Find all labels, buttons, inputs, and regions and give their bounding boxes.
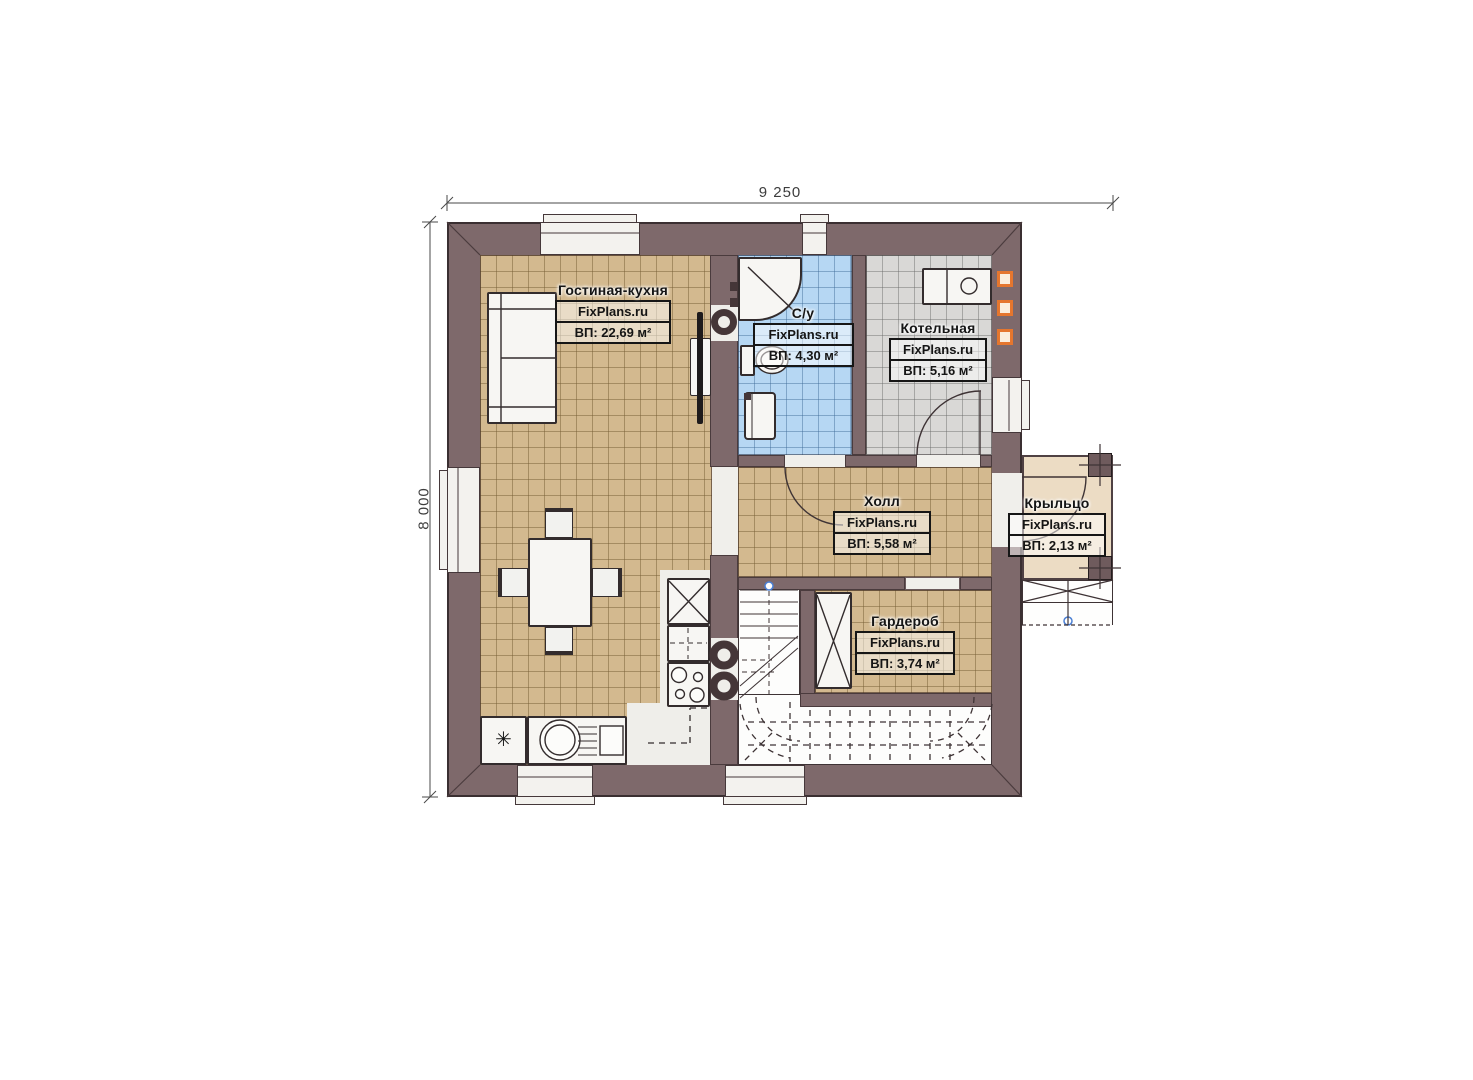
watermark: FixPlans.ru [835, 513, 929, 534]
fridge: ✳ [480, 716, 527, 765]
room-label-hall: Холл FixPlans.ru ВП: 5,58 м² [832, 494, 932, 555]
dining-table [528, 538, 592, 627]
window-top-living [540, 222, 640, 255]
dimension-width: 9 250 [740, 184, 820, 201]
vent-grille-3 [997, 329, 1013, 345]
wall-wardrobe-bottom [800, 693, 992, 707]
room-name-hall: Холл [832, 494, 932, 509]
room-name-living: Гостиная-кухня [545, 283, 681, 298]
shower-handle-2 [730, 298, 738, 307]
wall-boiler-hall-stub [980, 455, 992, 467]
watermark: FixPlans.ru [857, 633, 953, 654]
vent-grille-2 [997, 300, 1013, 316]
stove [667, 662, 710, 707]
watermark: FixPlans.ru [755, 325, 852, 346]
wall-stair-wardrobe [800, 590, 815, 695]
porch-post-bottom [1088, 556, 1112, 580]
room-area-wardrobe: ВП: 3,74 м² [857, 654, 953, 673]
wall-hall-wardrobe-stub [960, 577, 992, 590]
wall-bath-hall-2 [845, 455, 917, 467]
room-info-wardrobe: FixPlans.ru ВП: 3,74 м² [855, 631, 955, 675]
fridge-icon: ✳ [495, 729, 512, 751]
window-top-living-sill [543, 214, 637, 223]
chair-right [592, 568, 622, 597]
watermark: FixPlans.ru [1010, 515, 1104, 536]
room-info-boiler: FixPlans.ru ВП: 5,16 м² [889, 338, 987, 382]
window-left-sill [439, 470, 448, 570]
wall-hall-stair [738, 577, 905, 590]
room-label-wardrobe: Гардероб FixPlans.ru ВП: 3,74 м² [855, 614, 955, 675]
kitchen-floor-corner [627, 703, 660, 765]
vent-panel-top [711, 305, 738, 341]
vent-grille-1 [997, 271, 1013, 287]
porch-step-2 [1022, 602, 1113, 625]
shower-handle-1 [730, 282, 738, 291]
window-left-living [447, 467, 480, 573]
dimension-height: 8 000 [416, 469, 433, 549]
window-top-bath-sill [800, 214, 829, 223]
opening-bathroom-door [785, 455, 845, 467]
kitchen-sink-unit [527, 716, 627, 765]
window-bottom-stairs [725, 765, 805, 797]
kitchen-cabinet-base [667, 625, 710, 662]
opening-boiler-door [917, 455, 980, 467]
room-label-living: Гостиная-кухня FixPlans.ru ВП: 22,69 м² [545, 283, 681, 344]
room-info-living: FixPlans.ru ВП: 22,69 м² [555, 300, 671, 344]
watermark: FixPlans.ru [891, 340, 985, 361]
opening-wardrobe [905, 577, 960, 590]
watermark: FixPlans.ru [557, 302, 669, 323]
room-label-porch: Крыльцо FixPlans.ru ВП: 2,13 м² [1007, 496, 1107, 557]
chair-top [545, 508, 573, 538]
room-info-hall: FixPlans.ru ВП: 5,58 м² [833, 511, 931, 555]
window-right-sill [1021, 380, 1030, 430]
window-bottom-kitchen-sill [515, 796, 595, 805]
kitchen-cabinet-tall [667, 578, 710, 625]
window-right-boiler [992, 377, 1022, 433]
room-label-bathroom: С/у FixPlans.ru ВП: 4,30 м² [753, 306, 853, 367]
window-bottom-stairs-sill [723, 796, 807, 805]
wardrobe-cabinet [815, 592, 852, 689]
vent-panel-kitchen [711, 638, 738, 700]
window-bottom-kitchen [517, 765, 593, 797]
stair-flight-area [738, 577, 800, 695]
porch-post-top [1088, 453, 1112, 477]
room-name-bathroom: С/у [753, 306, 853, 321]
chair-bottom [545, 627, 573, 655]
room-area-living: ВП: 22,69 м² [557, 323, 669, 342]
washer-detail [744, 393, 751, 400]
room-name-wardrobe: Гардероб [855, 614, 955, 629]
porch-step-1 [1022, 580, 1113, 603]
window-top-bath [802, 222, 827, 255]
opening-kitchen-hall [712, 467, 738, 555]
room-info-bathroom: FixPlans.ru ВП: 4,30 м² [753, 323, 854, 367]
wall-bath-boiler [852, 255, 866, 455]
chair-left [498, 568, 528, 597]
room-area-hall: ВП: 5,58 м² [835, 534, 929, 553]
room-info-porch: FixPlans.ru ВП: 2,13 м² [1008, 513, 1106, 557]
wall-bath-hall-1 [738, 455, 785, 467]
room-name-boiler: Котельная [888, 321, 988, 336]
floor-plan-page: 9 250 8 000 [0, 0, 1473, 1080]
room-area-porch: ВП: 2,13 м² [1010, 536, 1104, 555]
boiler-unit [922, 268, 992, 305]
room-area-boiler: ВП: 5,16 м² [891, 361, 985, 380]
room-name-porch: Крыльцо [1007, 496, 1107, 511]
room-area-bathroom: ВП: 4,30 м² [755, 346, 852, 365]
tv [697, 312, 703, 424]
room-label-boiler: Котельная FixPlans.ru ВП: 5,16 м² [888, 321, 988, 382]
